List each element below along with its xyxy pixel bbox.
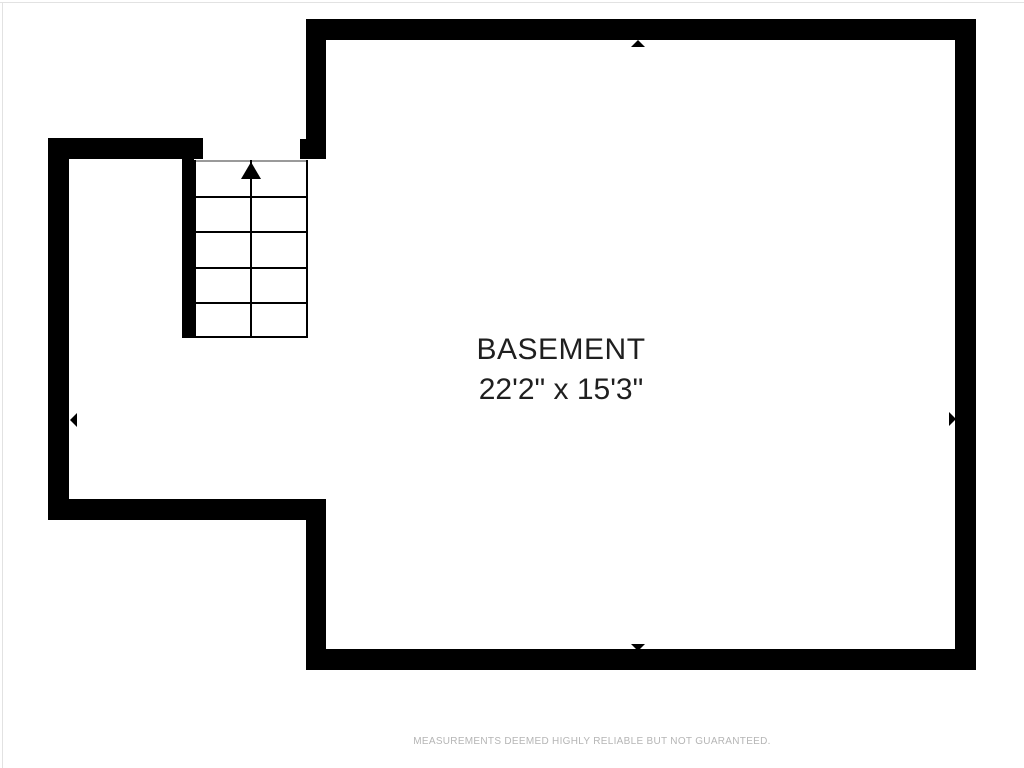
wall-corner-notch xyxy=(300,139,307,159)
wall-extension-top xyxy=(48,138,203,159)
stair-center-divider xyxy=(250,160,252,338)
floor-plan: BASEMENT 22'2" x 15'3" MEASUREMENTS DEEM… xyxy=(0,0,1024,768)
stair-edge-right xyxy=(306,160,308,338)
measure-arrow-right-icon xyxy=(949,412,956,426)
measure-arrow-down-icon xyxy=(631,644,645,651)
wall-extension-bottom xyxy=(48,499,326,520)
measure-arrow-left-icon xyxy=(70,413,77,427)
staircase xyxy=(194,160,308,338)
wall-left-upper xyxy=(306,19,326,159)
room-dimensions: 22'2" x 15'3" xyxy=(411,369,711,410)
wall-stair-side xyxy=(182,157,194,338)
room-label: BASEMENT 22'2" x 15'3" xyxy=(411,331,711,410)
wall-right xyxy=(955,19,976,670)
page-edge-line-left xyxy=(2,2,3,768)
wall-extension-left xyxy=(48,138,69,520)
room-name: BASEMENT xyxy=(411,331,711,369)
stair-edge-left xyxy=(194,160,196,338)
wall-top xyxy=(306,19,976,40)
measure-arrow-up-icon xyxy=(631,40,645,47)
wall-left-lower xyxy=(306,499,326,670)
disclaimer-text: MEASUREMENTS DEEMED HIGHLY RELIABLE BUT … xyxy=(392,736,792,747)
page-edge-line-top xyxy=(0,2,1024,3)
wall-bottom xyxy=(306,649,976,670)
